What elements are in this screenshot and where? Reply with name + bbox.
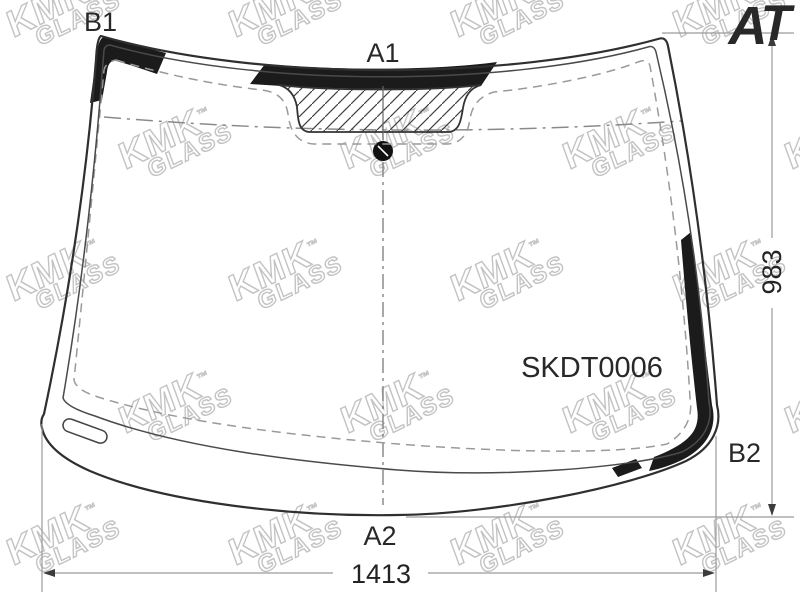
zone-label-b1: B1 — [84, 7, 117, 37]
at-logo: T A — [727, 0, 796, 56]
windshield-diagram: 983 1413 B1 A1 A2 B2 SKDT0006 T A — [0, 0, 800, 600]
zone-label-b2: B2 — [728, 438, 761, 468]
dimension-height-value: 983 — [757, 249, 787, 294]
vin-slot — [61, 417, 109, 445]
zone-label-a2: A2 — [363, 521, 396, 551]
dimension-width-value: 1413 — [351, 559, 411, 589]
camera-hatch-area — [279, 85, 481, 132]
at-logo-letter-a: A — [727, 0, 768, 56]
ceramic-band-corner-b1 — [90, 37, 166, 103]
part-number: SKDT0006 — [521, 352, 663, 384]
zone-label-a1: A1 — [366, 38, 399, 68]
